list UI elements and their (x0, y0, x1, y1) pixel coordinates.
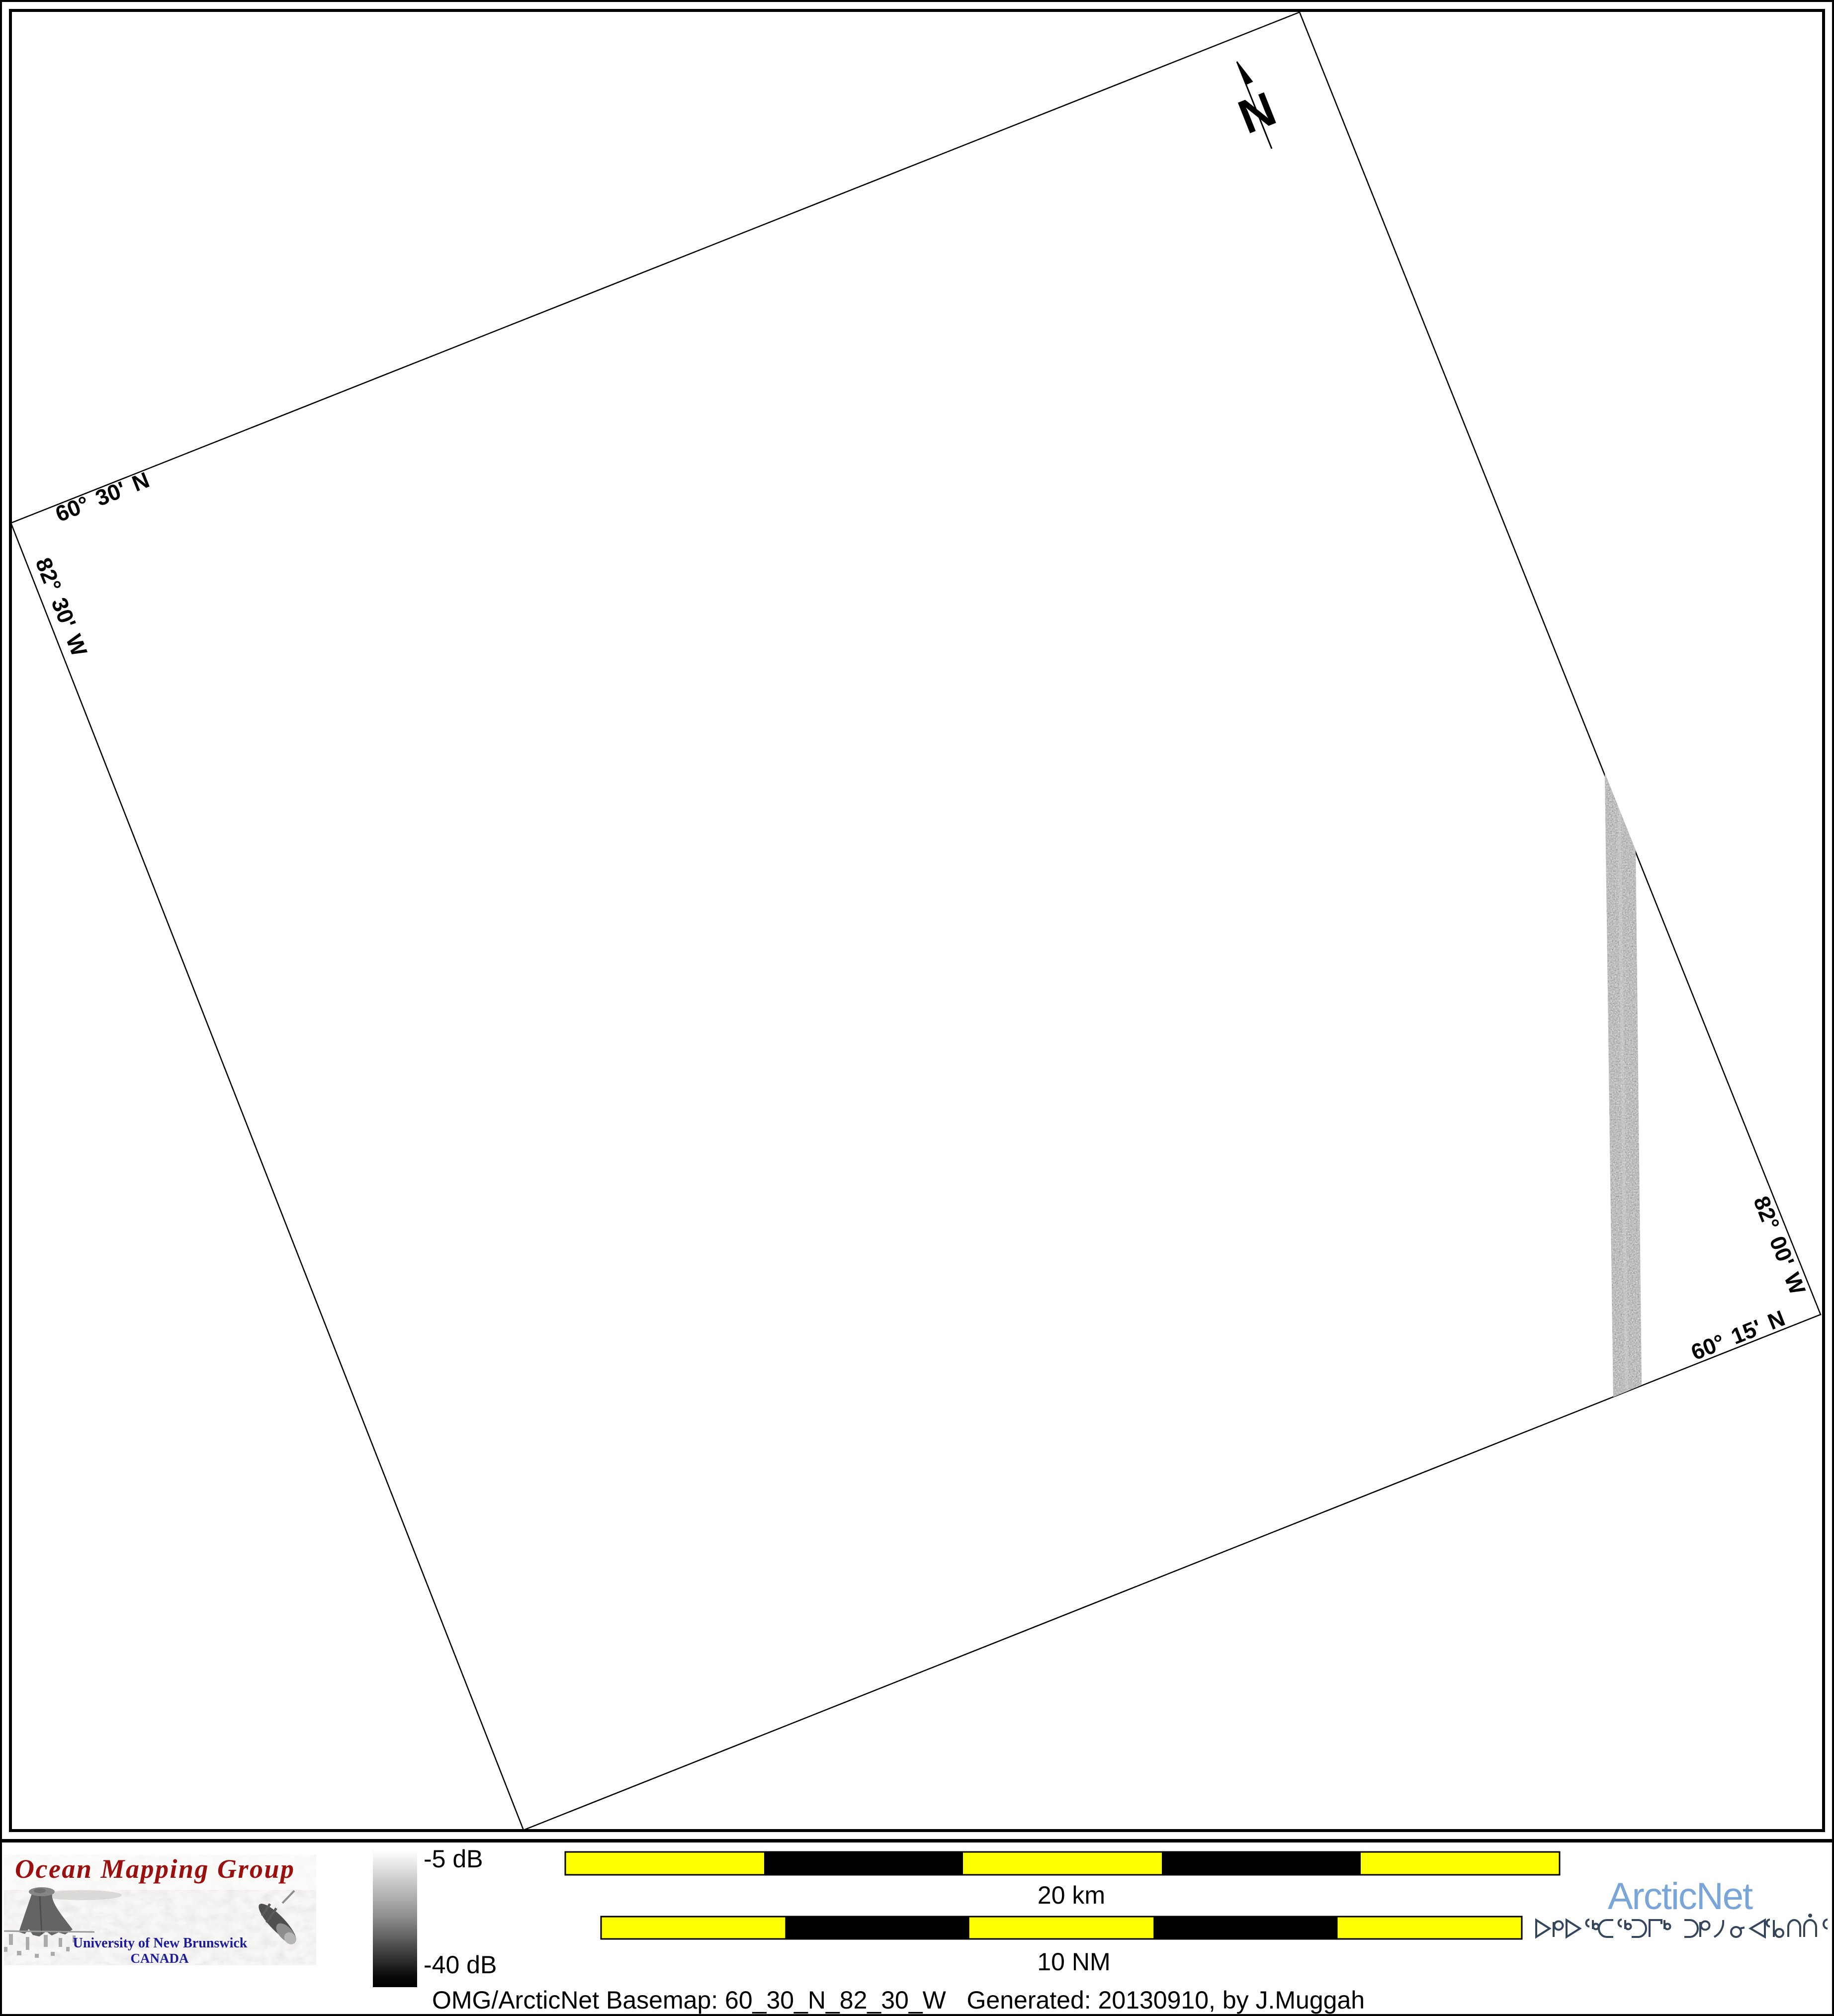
svg-text:OMG/ArcticNet Basemap: 60_30_N: OMG/ArcticNet Basemap: 60_30_N_82_30_W G… (432, 1986, 1365, 2014)
svg-text:10 NM: 10 NM (1037, 1948, 1110, 1976)
svg-text:University of New Brunswick: University of New Brunswick (73, 1935, 248, 1951)
svg-text:-40 dB: -40 dB (424, 1951, 497, 1979)
svg-text:CANADA: CANADA (131, 1951, 189, 1966)
svg-text:ArcticNet: ArcticNet (1608, 1875, 1753, 1918)
svg-text:-5 dB: -5 dB (424, 1845, 483, 1873)
svg-text:20 km: 20 km (1038, 1881, 1105, 1909)
svg-text:Ocean Mapping Group: Ocean Mapping Group (15, 1854, 295, 1884)
